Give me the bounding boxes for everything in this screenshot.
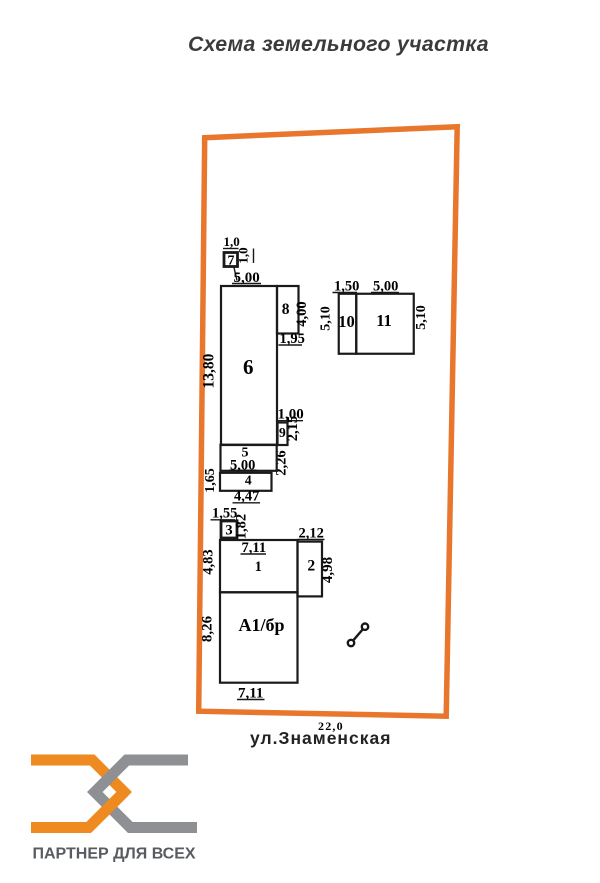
svg-text:1: 1 [255, 559, 262, 575]
svg-text:4: 4 [245, 473, 252, 488]
svg-text:7: 7 [228, 254, 235, 269]
svg-text:1,0: 1,0 [224, 234, 240, 249]
svg-text:4,98: 4,98 [320, 557, 336, 583]
svg-text:ПАРТНЕР ДЛЯ ВСЕХ: ПАРТНЕР ДЛЯ ВСЕХ [33, 846, 196, 863]
svg-text:ул.Знаменская: ул.Знаменская [250, 728, 391, 748]
svg-text:5,10: 5,10 [414, 305, 429, 330]
svg-text:1,0: 1,0 [236, 247, 251, 263]
svg-text:5,00: 5,00 [230, 458, 255, 474]
svg-text:4,00: 4,00 [294, 301, 310, 326]
svg-text:4,83: 4,83 [201, 549, 217, 574]
svg-text:2: 2 [307, 558, 315, 575]
svg-text:3: 3 [225, 523, 232, 539]
svg-text:11: 11 [376, 311, 392, 330]
svg-text:10: 10 [338, 312, 355, 331]
svg-text:6: 6 [243, 355, 254, 379]
svg-text:5,10: 5,10 [319, 306, 334, 331]
svg-text:13,80: 13,80 [200, 353, 217, 388]
svg-text:А1/бр: А1/бр [238, 615, 284, 635]
svg-text:8,26: 8,26 [199, 615, 215, 642]
svg-text:1,65: 1,65 [203, 468, 218, 493]
svg-text:8: 8 [282, 301, 290, 318]
svg-text:Схема земельного участка: Схема земельного участка [188, 32, 489, 56]
svg-text:1,82: 1,82 [234, 514, 250, 539]
svg-text:2,15: 2,15 [285, 416, 301, 441]
